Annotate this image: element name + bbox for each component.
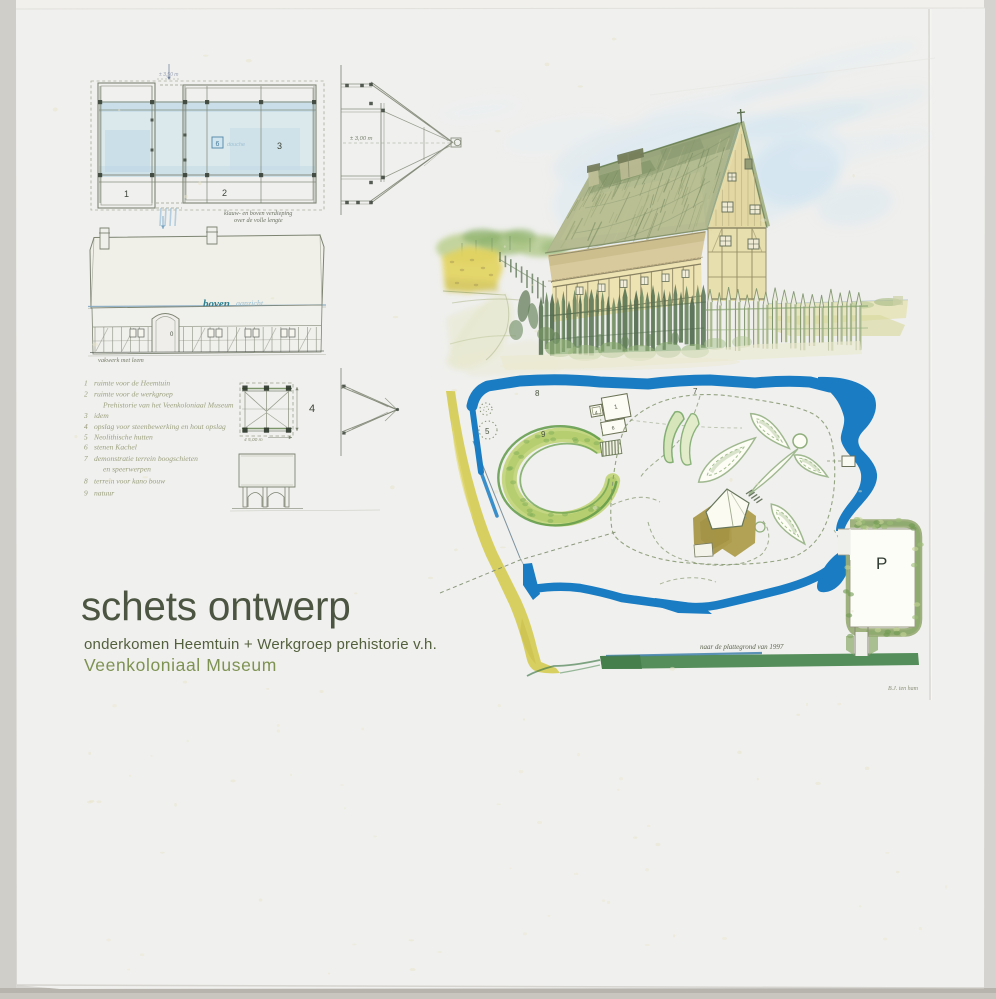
svg-text:over de volle lengte: over de volle lengte: [234, 217, 283, 224]
svg-text:8: 8: [84, 477, 88, 486]
svg-text:4: 4: [84, 422, 88, 431]
svg-text:terrein voor kano bouw: terrein voor kano bouw: [94, 477, 166, 486]
svg-text:1: 1: [124, 189, 129, 199]
svg-text:Veenkoloniaal Museum: Veenkoloniaal Museum: [84, 655, 277, 675]
svg-text:Neolithische hutten: Neolithische hutten: [93, 433, 153, 442]
svg-text:9: 9: [541, 430, 546, 439]
svg-text:6: 6: [84, 443, 88, 452]
svg-text:3: 3: [83, 411, 88, 420]
svg-text:7: 7: [84, 454, 88, 463]
svg-text:idem: idem: [94, 411, 109, 420]
svg-text:stenen Kachel: stenen Kachel: [94, 443, 137, 452]
svg-text:2: 2: [84, 390, 88, 399]
svg-text:naar de plattegrond van 1997: naar de plattegrond van 1997: [700, 643, 784, 651]
svg-text:± 3,50 m: ± 3,50 m: [159, 72, 178, 78]
svg-text:3: 3: [277, 141, 282, 151]
svg-text:opslag voor steenbewerking en: opslag voor steenbewerking en hout opsla…: [94, 422, 226, 431]
svg-text:demonstratie terrein boogschi: demonstratie terrein boogschieten: [94, 454, 198, 463]
svg-text:4: 4: [309, 403, 315, 415]
svg-text:B.J. ten ham: B.J. ten ham: [888, 686, 919, 692]
svg-text:5: 5: [84, 433, 88, 442]
svg-text:en speerwerpen: en speerwerpen: [103, 465, 151, 474]
svg-text:douche: douche: [227, 142, 245, 148]
svg-text:5: 5: [485, 427, 490, 436]
svg-text:vakwerk met leem: vakwerk met leem: [98, 357, 144, 364]
svg-text:4 5,00 m: 4 5,00 m: [244, 437, 263, 443]
svg-text:1: 1: [84, 379, 88, 388]
svg-text:ruimte voor de werkgroep: ruimte voor de werkgroep: [94, 390, 173, 399]
svg-text:Prehistorie van het Veenkoloni: Prehistorie van het Veenkoloniaal Museum: [102, 401, 234, 410]
svg-text:natuur: natuur: [94, 489, 114, 498]
svg-text:6: 6: [216, 141, 220, 148]
svg-text:8: 8: [535, 389, 540, 398]
svg-text:onderkomen Heemtuin + Werkgro: onderkomen Heemtuin + Werkgroep prehisto…: [84, 636, 437, 653]
svg-text:schets ontwerp: schets ontwerp: [81, 583, 351, 629]
svg-text:ruimte voor de Heemtuin: ruimte voor de Heemtuin: [94, 379, 170, 388]
svg-text:P: P: [876, 554, 887, 573]
svg-text:± 3,00 m: ± 3,00 m: [350, 136, 373, 142]
svg-text:9: 9: [84, 489, 88, 498]
svg-text:2: 2: [222, 188, 227, 198]
svg-text:klauw- en boven verdieping: klauw- en boven verdieping: [224, 210, 292, 217]
